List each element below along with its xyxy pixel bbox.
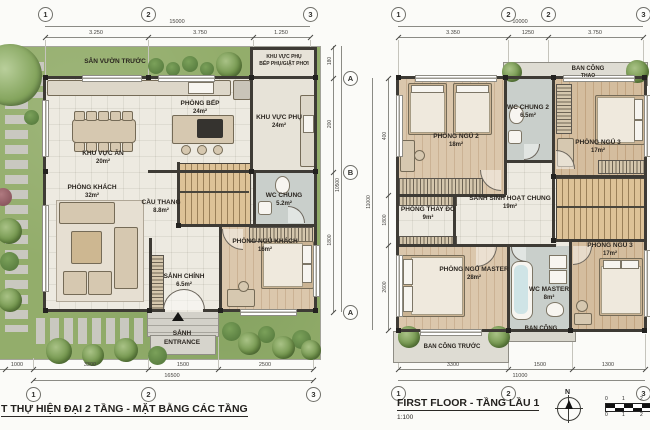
entrance-l1: SẢNH	[164, 329, 200, 338]
grid-bubble-2: 2	[141, 387, 156, 402]
wc-label: WC CHUNG5.2m²	[266, 191, 302, 209]
grid-bubble-3: 3	[303, 7, 318, 22]
dim-total: 15000	[169, 19, 184, 25]
annex-label: KHU VỰC PHỤBẾP PHỤ/GIẶT PHƠI	[259, 54, 308, 68]
stool	[181, 145, 191, 155]
scalebar-1: 1	[622, 396, 625, 402]
wardrobe	[598, 160, 646, 174]
tree	[272, 336, 295, 359]
wcm-name: WC MASTER	[529, 285, 569, 294]
chaise-sofa	[114, 227, 138, 289]
bedroom3b-name: PHÒNG NGỦ 3	[587, 241, 633, 250]
bathtub-inner	[514, 265, 528, 314]
window	[82, 75, 142, 82]
master-area: 28m²	[439, 274, 508, 283]
dim-total: 16500	[164, 373, 179, 379]
sink	[549, 255, 567, 269]
tree	[114, 338, 138, 362]
wc2-area: 6.5m²	[507, 112, 549, 121]
first-floor-title: FIRST FLOOR - TẦNG LẦU 1	[397, 397, 539, 411]
armchair	[88, 271, 112, 295]
grid-bubble-3: 3	[306, 387, 321, 402]
tree	[301, 340, 321, 360]
kitchen-name: PHÒNG BẾP	[180, 99, 219, 108]
rear-balcony-label: BAN CÔNGTHAO	[572, 65, 605, 80]
mattress	[410, 92, 445, 133]
bedroom3a-label: PHÒNG NGỦ 317m²	[575, 138, 621, 156]
rear-balcony-l1: BAN CÔNG	[572, 65, 605, 73]
window	[644, 95, 650, 157]
ground-floor-title: T THỰ HIỆN ĐẠI 2 TẦNG - MẶT BẰNG CÁC TẦN…	[1, 403, 248, 417]
grid-bubble-1: 1	[26, 387, 41, 402]
stairs-name: CẦU THANG	[142, 198, 181, 207]
small-balcony-label: BAN CÔNG	[525, 325, 558, 334]
armchair	[63, 271, 87, 295]
bush	[0, 252, 19, 271]
entrance-label: SẢNHENTRANCE	[164, 329, 200, 348]
dim-seg-v: 180	[327, 57, 333, 65]
stool	[197, 145, 207, 155]
window	[396, 255, 403, 317]
scalebar-b2: 2	[640, 412, 643, 418]
dim-seg: 1300	[602, 362, 614, 368]
window	[42, 100, 49, 157]
grid-bubble-1: 1	[38, 7, 53, 22]
front-garden-name: SÂN VƯỜN TRƯỚC	[84, 57, 146, 66]
dim-seg-v: 1800	[382, 214, 388, 225]
dim-seg: 1500	[534, 362, 546, 368]
lobby-area: 6.5m²	[164, 281, 205, 290]
living-name: PHÒNG KHÁCH	[67, 183, 116, 192]
window	[420, 329, 482, 336]
fridge	[233, 80, 251, 100]
pillow	[302, 245, 312, 264]
pillow	[621, 260, 639, 269]
stair-divider	[179, 191, 249, 193]
bedroom2-label: PHÒNG NGỦ 218m²	[433, 132, 479, 150]
stool	[576, 300, 588, 312]
grid-bubble-1: 1	[391, 7, 406, 22]
dim-total-v: 11000	[366, 195, 372, 209]
kitchen-sink	[188, 82, 214, 94]
kitchen-area: 24m²	[180, 108, 219, 117]
stairs-label: CẦU THANG8.8m²	[142, 198, 181, 216]
annex-l1: KHU VỰC PHỤ	[259, 54, 308, 61]
grid-bubble-3: 3	[636, 386, 650, 401]
grid-bubble-B: B	[343, 165, 358, 180]
desk-chair	[238, 281, 249, 292]
window	[415, 75, 497, 82]
dim-seg: 3.350	[446, 30, 460, 36]
dim-seg: 1000	[11, 362, 23, 368]
bedroom3a-area: 17m²	[575, 147, 621, 156]
scalebar-b1: 1	[622, 412, 625, 418]
entrance-arrow	[172, 312, 184, 321]
dim-seg-v: 400	[382, 132, 388, 140]
pillow	[456, 85, 489, 93]
wardrobe	[556, 84, 572, 134]
dim-seg: 1500	[177, 362, 189, 368]
dim-seg-v: 2600	[382, 281, 388, 292]
grid-bubble-2: 2	[501, 7, 516, 22]
window	[313, 245, 320, 297]
grid-bubble-2b: 2	[541, 7, 556, 22]
hall-label: SẢNH SINH HOẠT CHUNG19m²	[469, 194, 551, 212]
front-balcony-label: BAN CÔNG TRƯỚC	[424, 343, 481, 352]
scale-text: 1:100	[397, 414, 413, 421]
bush	[24, 110, 39, 125]
dim-seg: 3300	[447, 362, 459, 368]
stair-divider-ff	[556, 206, 644, 208]
hall-area: 19m²	[469, 203, 551, 212]
bedroom2-name: PHÒNG NGỦ 2	[433, 132, 479, 141]
north-arrow-icon	[557, 397, 581, 421]
grid-bubble-A2: A	[343, 305, 358, 320]
window	[42, 205, 49, 292]
coffee-table	[71, 231, 102, 264]
sofa	[59, 202, 115, 224]
dim-seg-v: 200	[327, 120, 333, 128]
guest-area: 16m²	[232, 246, 297, 255]
window	[158, 75, 215, 82]
lobby-name: SẢNH CHÍNH	[164, 272, 205, 281]
guest-name: PHÒNG NGỦ KHÁCH	[232, 237, 297, 246]
aux-name: KHU VỰC PHỤ	[256, 113, 302, 122]
pillow	[603, 260, 621, 269]
pillow	[634, 99, 643, 120]
tree	[0, 288, 22, 312]
hedge	[182, 56, 198, 72]
dining-area: 20m²	[82, 158, 124, 167]
mattress	[455, 92, 490, 133]
living-label: PHÒNG KHÁCH32m²	[67, 183, 116, 201]
bedroom3b-area: 17m²	[587, 250, 633, 259]
tree	[46, 338, 72, 364]
wc2-label: WC CHUNG 26.5m²	[507, 103, 549, 121]
bedroom3b-label: PHÒNG NGỦ 317m²	[587, 241, 633, 259]
small-balcony-name: BAN CÔNG	[525, 325, 558, 334]
stove	[197, 119, 223, 138]
dim-seg: 3.750	[588, 30, 602, 36]
shoe-cabinet	[151, 255, 164, 310]
grid-bubble-A: A	[343, 71, 358, 86]
master-label: PHÒNG NGỦ MASTER28m²	[439, 265, 508, 283]
bedroom3a-name: PHÒNG NGỦ 3	[575, 138, 621, 147]
scalebar-b0: 0	[605, 412, 608, 418]
dim-seg: 1.250	[274, 30, 288, 36]
dining-label: KHU VỰC ĂN20m²	[82, 149, 124, 167]
grid-bubble-3: 3	[636, 7, 650, 22]
bedroom2-area: 18m²	[433, 141, 479, 150]
wc2-name: WC CHUNG 2	[507, 103, 549, 112]
stairs-area: 8.8m²	[142, 207, 181, 216]
dim-total: 11000	[513, 373, 528, 379]
rear-balcony-l2: THAO	[572, 73, 605, 80]
dim-seg: 3300	[84, 362, 96, 368]
master-name: PHÒNG NGỦ MASTER	[439, 265, 508, 274]
tree	[238, 332, 261, 355]
wcm-label: WC MASTER8m²	[529, 285, 569, 303]
mattress	[601, 266, 641, 314]
scalebar-0: 0	[605, 396, 608, 402]
sink	[549, 270, 567, 284]
dressing-area: 9m²	[401, 214, 455, 223]
hall-name: SẢNH SINH HOẠT CHUNG	[469, 194, 551, 203]
dressing-label: PHÒNG THAY ĐỒ9m²	[401, 205, 455, 223]
dressing-name: PHÒNG THAY ĐỒ	[401, 205, 455, 214]
lobby-label: SẢNH CHÍNH6.5m²	[164, 272, 205, 290]
dim-seg: 1250	[522, 30, 534, 36]
north-label: N	[565, 389, 570, 396]
annex-l2: BẾP PHỤ/GIẶT PHƠI	[259, 61, 308, 68]
dim-seg: 3.750	[193, 30, 207, 36]
front-balcony-name: BAN CÔNG TRƯỚC	[424, 343, 481, 352]
dim-total-v: 10500	[335, 178, 341, 192]
kitchen-label: PHÒNG BẾP24m²	[180, 99, 219, 117]
desk-chair	[414, 150, 425, 161]
wcm-area: 8m²	[529, 294, 569, 303]
toilet	[546, 302, 564, 317]
grid-bubble-2: 2	[141, 7, 156, 22]
wc2-sink	[508, 130, 522, 144]
pillow	[634, 120, 643, 141]
guest-label: PHÒNG NGỦ KHÁCH16m²	[232, 237, 297, 255]
dining-name: KHU VỰC ĂN	[82, 149, 124, 158]
hedge	[148, 58, 164, 74]
pillow	[403, 286, 413, 312]
side-table	[574, 313, 592, 325]
pillow	[403, 259, 413, 285]
tree	[216, 52, 242, 78]
dining-table	[72, 119, 136, 143]
pillow	[302, 264, 312, 283]
aux-sink	[303, 115, 314, 133]
stool	[213, 145, 223, 155]
dim-seg: 3.250	[89, 30, 103, 36]
living-area: 32m²	[67, 192, 116, 201]
bush	[148, 346, 167, 365]
pillow	[411, 85, 444, 93]
dim-seg-v: 1800	[327, 234, 333, 245]
aux-area: 24m²	[256, 122, 302, 131]
floor-plan-sheet: SÂN VƯỜN TRƯỚC KHU VỰC PHỤBẾP PHỤ/GIẶT P…	[0, 0, 650, 430]
window	[396, 95, 403, 157]
dim-total: 10000	[512, 19, 527, 25]
window	[240, 309, 297, 316]
staircase-ff	[556, 178, 646, 240]
wc-area: 5.2m²	[266, 200, 302, 209]
front-garden-label: SÂN VƯỜN TRƯỚC	[84, 57, 146, 66]
window	[644, 250, 650, 317]
entrance-l2: ENTRANCE	[164, 338, 200, 347]
aux-label: KHU VỰC PHỤ24m²	[256, 113, 302, 131]
wc-name: WC CHUNG	[266, 191, 302, 200]
scalebar-2: 2	[640, 396, 643, 402]
dim-seg: 2500	[259, 362, 271, 368]
scalebar-icon	[605, 403, 650, 412]
mattress	[597, 97, 635, 143]
